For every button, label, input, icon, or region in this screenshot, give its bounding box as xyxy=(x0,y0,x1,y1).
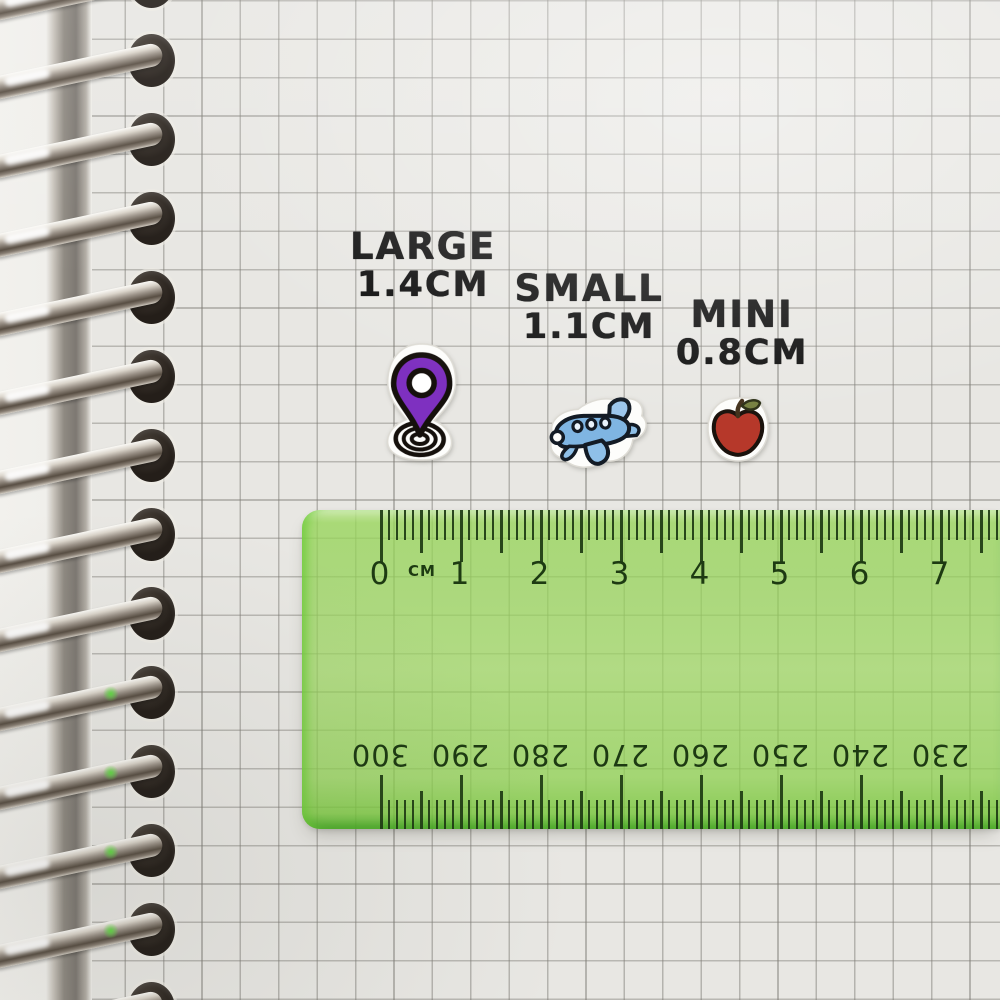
ruler-bottom-mm-tick xyxy=(636,800,638,829)
ruler-top-mm-tick xyxy=(444,510,446,540)
ruler-cm-number: 2 xyxy=(530,556,551,592)
ruler-bottom-cm-tick xyxy=(540,775,543,829)
spiral-ring xyxy=(0,896,210,976)
ruler-bottom-cm-tick xyxy=(380,775,383,829)
ruler-top-mm-tick xyxy=(932,510,934,540)
ruler-top-half-tick xyxy=(900,510,903,553)
ruler-top-mm-tick xyxy=(564,510,566,540)
ruler-mm-number-flipped: 270 xyxy=(591,738,649,772)
label-small: SMALL 1.1CM xyxy=(514,270,664,346)
ruler-bottom-mm-tick xyxy=(716,800,718,829)
ruler-bottom-half-tick xyxy=(900,791,903,829)
ruler-cm-number: 5 xyxy=(770,556,791,592)
ruler-bottom-mm-tick xyxy=(412,800,414,829)
ruler-top-mm-tick xyxy=(476,510,478,540)
ruler-bottom-mm-tick xyxy=(788,800,790,829)
ruler-top-mm-tick xyxy=(828,510,830,540)
spiral-ring xyxy=(0,27,210,107)
ruler-bottom-half-tick xyxy=(660,791,663,829)
ruler-top-half-tick xyxy=(420,510,423,553)
ruler-top-mm-tick xyxy=(764,510,766,540)
ruler-top-mm-tick xyxy=(748,510,750,540)
ruler-bottom-mm-tick xyxy=(988,800,990,829)
ruler-top-mm-tick xyxy=(636,510,638,540)
ruler-bottom-mm-tick xyxy=(532,800,534,829)
ruler-cm-number: 1 xyxy=(450,556,471,592)
ruler-top-mm-tick xyxy=(772,510,774,540)
ruler-mm-number-flipped: 300 xyxy=(351,738,409,772)
ruler-bottom-mm-tick xyxy=(996,800,998,829)
ruler-bottom-mm-tick xyxy=(436,800,438,829)
photo-stage: LARGE 1.4CM SMALL 1.1CM MINI 0.8CM xyxy=(0,0,1000,1000)
ruler-top-mm-tick xyxy=(924,510,926,540)
ruler-bottom-mm-tick xyxy=(684,800,686,829)
ruler-bottom-mm-tick xyxy=(756,800,758,829)
ruler-mm-number-flipped: 250 xyxy=(751,738,809,772)
ruler-top-mm-tick xyxy=(852,510,854,540)
ruler-top-mm-tick xyxy=(868,510,870,540)
ruler-bottom-mm-tick xyxy=(724,800,726,829)
ruler-top-cm-tick xyxy=(940,510,943,562)
ruler-bottom-mm-tick xyxy=(836,800,838,829)
ruler-bottom-mm-tick xyxy=(588,800,590,829)
graph-grid xyxy=(86,0,1000,1000)
ruler-cm-number: 0 xyxy=(370,556,391,592)
ruler-top-mm-tick xyxy=(804,510,806,540)
ruler-bottom-mm-tick xyxy=(964,800,966,829)
ruler-bottom-half-tick xyxy=(740,791,743,829)
ruler-bottom-mm-tick xyxy=(916,800,918,829)
ruler-mm-number-flipped: 260 xyxy=(671,738,729,772)
ruler-top-mm-tick xyxy=(628,510,630,540)
ruler-bottom-mm-tick xyxy=(524,800,526,829)
ruler-bottom-mm-tick xyxy=(868,800,870,829)
ruler-top-mm-tick xyxy=(572,510,574,540)
ruler-top-mm-tick xyxy=(484,510,486,540)
ruler-bottom-half-tick xyxy=(500,791,503,829)
ruler-bottom-mm-tick xyxy=(812,800,814,829)
ruler-top-mm-tick xyxy=(956,510,958,540)
ruler-bottom-mm-tick xyxy=(772,800,774,829)
ruler-mm-number-flipped: 290 xyxy=(431,738,489,772)
ruler-bottom-mm-tick xyxy=(604,800,606,829)
ruler-bottom-mm-tick xyxy=(732,800,734,829)
ruler-top-mm-tick xyxy=(844,510,846,540)
ruler-bottom-mm-tick xyxy=(948,800,950,829)
ruler-top-half-tick xyxy=(580,510,583,553)
ruler-top-cm-tick xyxy=(460,510,463,562)
punched-hole xyxy=(128,0,175,8)
ruler-top-half-tick xyxy=(660,510,663,553)
ruler-bottom-mm-tick xyxy=(932,800,934,829)
ruler-top-mm-tick xyxy=(908,510,910,540)
ruler-top-half-tick xyxy=(980,510,983,553)
ruler-cm-number: 4 xyxy=(690,556,711,592)
ruler-top-mm-tick xyxy=(492,510,494,540)
ruler-top-mm-tick xyxy=(652,510,654,540)
ruler-bottom-half-tick xyxy=(580,791,583,829)
ruler-top-mm-tick xyxy=(556,510,558,540)
ruler-top-mm-tick xyxy=(708,510,710,540)
ruler-top-cm-tick xyxy=(700,510,703,562)
ruler-bottom-cm-tick xyxy=(940,775,943,829)
ruler-bottom-mm-tick xyxy=(596,800,598,829)
ruler-bottom-mm-tick xyxy=(796,800,798,829)
ruler-top-mm-tick xyxy=(892,510,894,540)
ruler-top-mm-tick xyxy=(756,510,758,540)
ruler-bottom-half-tick xyxy=(980,791,983,829)
label-small-size: 1.1CM xyxy=(514,308,664,346)
ruler-top-mm-tick xyxy=(596,510,598,540)
ruler-top-mm-tick xyxy=(916,510,918,540)
spiral-ring xyxy=(0,185,210,265)
ruler-top-mm-tick xyxy=(812,510,814,540)
label-large: LARGE 1.4CM xyxy=(348,228,498,304)
ruler-bottom-mm-tick xyxy=(668,800,670,829)
ruler-top-mm-tick xyxy=(508,510,510,540)
ruler-bottom-mm-tick xyxy=(564,800,566,829)
ruler-bottom-cm-tick xyxy=(620,775,623,829)
ruler-bottom-cm-tick xyxy=(700,775,703,829)
ruler-top-mm-tick xyxy=(996,510,998,540)
ruler-mm-number-flipped: 280 xyxy=(511,738,569,772)
ruler-bottom-mm-tick xyxy=(548,800,550,829)
spiral-ring xyxy=(0,817,210,897)
ruler-top-mm-tick xyxy=(428,510,430,540)
label-large-name: LARGE xyxy=(348,228,498,266)
ruler-top-mm-tick xyxy=(972,510,974,540)
ruler-top-mm-tick xyxy=(404,510,406,540)
ruler-bottom-mm-tick xyxy=(508,800,510,829)
ruler-top-mm-tick xyxy=(604,510,606,540)
spiral-ring xyxy=(0,975,210,1000)
ruler-bottom-mm-tick xyxy=(556,800,558,829)
ruler-bottom-mm-tick xyxy=(748,800,750,829)
ruler-bottom-mm-tick xyxy=(468,800,470,829)
ruler-bottom-mm-tick xyxy=(956,800,958,829)
ruler-mm-number-flipped: 230 xyxy=(911,738,969,772)
ruler-bottom-mm-tick xyxy=(516,800,518,829)
spiral-ring xyxy=(0,343,210,423)
ruler-bottom-mm-tick xyxy=(764,800,766,829)
ruler-top-half-tick xyxy=(740,510,743,553)
ruler-top-half-tick xyxy=(820,510,823,553)
ruler-bottom-mm-tick xyxy=(692,800,694,829)
ruler-bottom-mm-tick xyxy=(852,800,854,829)
ruler-cm-number: 7 xyxy=(930,556,951,592)
ruler-bottom-mm-tick xyxy=(908,800,910,829)
ruler-top-mm-tick xyxy=(876,510,878,540)
ruler-mm-number-flipped: 240 xyxy=(831,738,889,772)
ruler-bottom-mm-tick xyxy=(828,800,830,829)
spiral-ring xyxy=(0,659,210,739)
spiral-ring xyxy=(0,422,210,502)
ruler-bottom-mm-tick xyxy=(892,800,894,829)
ruler-top-mm-tick xyxy=(884,510,886,540)
ruler-top-mm-tick xyxy=(412,510,414,540)
label-mini-size: 0.8CM xyxy=(672,334,812,372)
ruler-bottom-mm-tick xyxy=(644,800,646,829)
ruler-top-half-tick xyxy=(500,510,503,553)
ruler-bottom-mm-tick xyxy=(876,800,878,829)
ruler-bottom-cm-tick xyxy=(860,775,863,829)
ruler-bottom-mm-tick xyxy=(612,800,614,829)
ruler-unit-label: CM xyxy=(408,562,436,580)
ruler-bottom-mm-tick xyxy=(388,800,390,829)
location-pin-sticker-icon xyxy=(379,341,463,464)
ruler-bottom-half-tick xyxy=(820,791,823,829)
ruler-bottom-mm-tick xyxy=(924,800,926,829)
ruler-bottom-mm-tick xyxy=(476,800,478,829)
ruler-top-mm-tick xyxy=(516,510,518,540)
ruler-top-mm-tick xyxy=(396,510,398,540)
ruler-top-mm-tick xyxy=(612,510,614,540)
spiral-ring xyxy=(0,264,210,344)
ruler-top-mm-tick xyxy=(668,510,670,540)
label-mini-name: MINI xyxy=(672,296,812,334)
ruler-top-mm-tick xyxy=(836,510,838,540)
ruler-bottom-mm-tick xyxy=(428,800,430,829)
ruler-top-mm-tick xyxy=(692,510,694,540)
spiral-ring xyxy=(0,0,210,28)
ruler-top-mm-tick xyxy=(948,510,950,540)
ruler-bottom-cm-tick xyxy=(780,775,783,829)
ruler-bottom-mm-tick xyxy=(676,800,678,829)
ruler-top-mm-tick xyxy=(732,510,734,540)
label-mini: MINI 0.8CM xyxy=(672,296,812,372)
ruler-top-mm-tick xyxy=(436,510,438,540)
ruler-cm-number: 6 xyxy=(850,556,871,592)
airplane-sticker-icon xyxy=(540,394,650,470)
ruler-bottom-mm-tick xyxy=(628,800,630,829)
ruler-top-cm-tick xyxy=(780,510,783,562)
ruler-top-mm-tick xyxy=(468,510,470,540)
apple-sticker-icon xyxy=(704,393,772,465)
ruler-top-mm-tick xyxy=(676,510,678,540)
ruler-top-mm-tick xyxy=(452,510,454,540)
ruler-bottom-mm-tick xyxy=(708,800,710,829)
ruler-top-mm-tick xyxy=(644,510,646,540)
ruler-top-mm-tick xyxy=(588,510,590,540)
ruler-bottom-mm-tick xyxy=(804,800,806,829)
ruler-bottom-mm-tick xyxy=(452,800,454,829)
ruler-top-cm-tick xyxy=(540,510,543,562)
ruler-top-mm-tick xyxy=(388,510,390,540)
ruler-bottom-cm-tick xyxy=(460,775,463,829)
ruler-top-mm-tick xyxy=(548,510,550,540)
label-small-name: SMALL xyxy=(514,270,664,308)
label-large-size: 1.4CM xyxy=(348,266,498,304)
ruler-top-cm-tick xyxy=(620,510,623,562)
ruler-bottom-mm-tick xyxy=(492,800,494,829)
ruler-top-mm-tick xyxy=(524,510,526,540)
spiral-ring xyxy=(0,106,210,186)
ruler-bottom-mm-tick xyxy=(884,800,886,829)
ruler-bottom-mm-tick xyxy=(844,800,846,829)
green-ruler: CM 01234567300290280270260250240230 xyxy=(302,510,1000,829)
ruler-bottom-mm-tick xyxy=(572,800,574,829)
ruler-top-mm-tick xyxy=(716,510,718,540)
ruler-top-mm-tick xyxy=(788,510,790,540)
ruler-top-mm-tick xyxy=(724,510,726,540)
ruler-top-cm-tick xyxy=(380,510,383,562)
ruler-cm-number: 3 xyxy=(610,556,631,592)
ruler-bottom-mm-tick xyxy=(404,800,406,829)
spiral-ring xyxy=(0,738,210,818)
ruler-bottom-half-tick xyxy=(420,791,423,829)
ruler-bottom-mm-tick xyxy=(652,800,654,829)
ruler-bottom-mm-tick xyxy=(972,800,974,829)
ruler-top-mm-tick xyxy=(964,510,966,540)
spiral-ring xyxy=(0,501,210,581)
spiral-ring xyxy=(0,580,210,660)
ruler-top-mm-tick xyxy=(796,510,798,540)
ruler-top-mm-tick xyxy=(532,510,534,540)
ruler-bottom-mm-tick xyxy=(484,800,486,829)
ruler-bottom-mm-tick xyxy=(444,800,446,829)
ruler-top-cm-tick xyxy=(860,510,863,562)
ruler-top-mm-tick xyxy=(988,510,990,540)
ruler-bottom-mm-tick xyxy=(396,800,398,829)
ruler-top-mm-tick xyxy=(684,510,686,540)
